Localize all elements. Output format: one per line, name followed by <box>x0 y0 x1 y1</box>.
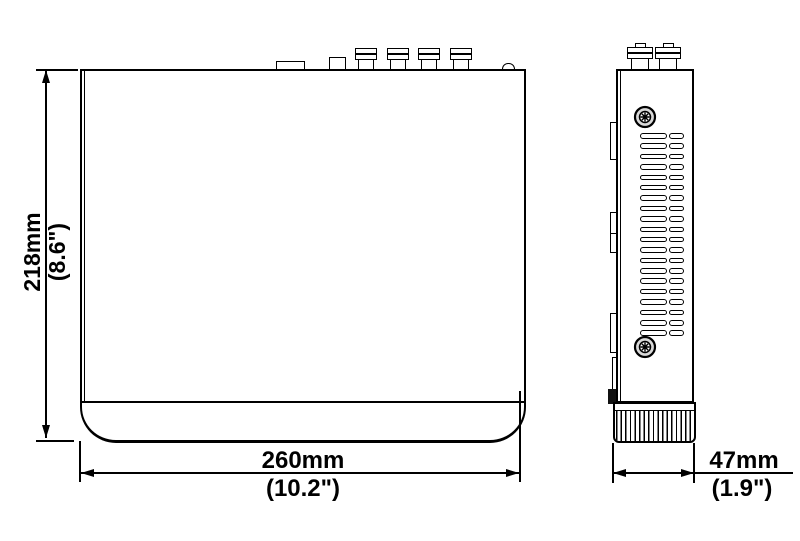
arrowhead-left <box>81 469 94 477</box>
vent-slot <box>640 164 667 170</box>
vent-slot <box>640 195 667 201</box>
bnc-stem <box>631 58 649 69</box>
front-body-inner-edge <box>84 71 85 401</box>
extension-line <box>612 443 614 483</box>
vent-row <box>640 247 684 253</box>
bnc-cap <box>627 47 653 59</box>
vent-slot <box>669 185 684 191</box>
vent-slot <box>669 195 684 201</box>
front-view-base <box>80 403 526 443</box>
vent-slot <box>640 247 667 253</box>
bnc-stem <box>390 59 406 69</box>
height-label-imperial: (8.6") <box>45 204 70 300</box>
vent-row <box>640 154 684 160</box>
vent-slot <box>669 206 684 212</box>
bnc-cap <box>450 48 472 60</box>
vent-row <box>640 216 684 222</box>
vent-row <box>640 330 684 336</box>
depth-label-metric: 47mm <box>694 447 794 475</box>
bnc-cap <box>418 48 440 60</box>
bnc-cap <box>387 48 409 60</box>
vent-slot <box>640 310 667 316</box>
vent-slot <box>640 185 667 191</box>
arrowhead-right <box>506 469 519 477</box>
extension-line <box>36 440 74 442</box>
vent-slot <box>669 216 684 222</box>
bnc-cap <box>655 47 681 59</box>
height-dimension-label: 218mm (8.6") <box>20 204 70 300</box>
vent-row <box>640 227 684 233</box>
vent-slot <box>669 164 684 170</box>
vent-slot <box>640 133 667 139</box>
width-label-imperial: (10.2") <box>230 475 376 503</box>
vent-grid <box>640 133 684 341</box>
vent-slot <box>669 175 684 181</box>
vent-slot <box>669 330 684 336</box>
vent-slot <box>640 143 667 149</box>
vent-slot <box>669 289 684 295</box>
vent-slot <box>669 310 684 316</box>
vent-slot <box>640 206 667 212</box>
vent-row <box>640 143 684 149</box>
bnc-stem <box>453 59 469 69</box>
vent-slot <box>640 237 667 243</box>
extension-line <box>519 391 521 482</box>
vent-row <box>640 195 684 201</box>
vent-slot <box>640 154 667 160</box>
vent-row <box>640 320 684 326</box>
vent-slot <box>669 237 684 243</box>
vent-slot <box>669 320 684 326</box>
vent-slot <box>640 299 667 305</box>
vent-row <box>640 175 684 181</box>
foot-top-band <box>615 404 694 411</box>
front-view-body <box>80 69 526 403</box>
width-label-metric: 260mm <box>230 447 376 475</box>
vent-slot <box>640 175 667 181</box>
vent-slot <box>669 133 684 139</box>
vent-slot <box>640 227 667 233</box>
vent-row <box>640 133 684 139</box>
vent-slot <box>669 278 684 284</box>
vent-row <box>640 206 684 212</box>
vent-row <box>640 289 684 295</box>
depth-label-imperial: (1.9") <box>692 475 792 503</box>
vent-row <box>640 310 684 316</box>
vent-row <box>640 268 684 274</box>
vent-row <box>640 164 684 170</box>
vent-slot <box>640 278 667 284</box>
vent-row <box>640 185 684 191</box>
bnc-stem <box>358 59 374 69</box>
dimension-drawing-page: { "drawing": { "title": "device-dimensio… <box>0 0 800 541</box>
arrowhead-left <box>613 469 626 477</box>
arrowhead-up <box>42 70 50 83</box>
bnc-stem <box>421 59 437 69</box>
vent-slot <box>669 154 684 160</box>
vent-slot <box>669 258 684 264</box>
foot-ribs <box>616 411 693 441</box>
height-label-metric: 218mm <box>20 204 45 300</box>
arrowhead-down <box>42 425 50 438</box>
vent-row <box>640 299 684 305</box>
vent-slot <box>669 227 684 233</box>
vent-slot <box>669 299 684 305</box>
vent-slot <box>669 247 684 253</box>
side-view-foot <box>613 402 696 443</box>
bnc-cap <box>355 48 377 60</box>
vent-slot <box>669 143 684 149</box>
vent-slot <box>640 216 667 222</box>
vent-slot <box>669 268 684 274</box>
vent-row <box>640 278 684 284</box>
vent-slot <box>640 268 667 274</box>
vent-row <box>640 258 684 264</box>
vent-row <box>640 237 684 243</box>
vent-slot <box>640 320 667 326</box>
vent-slot <box>640 258 667 264</box>
bnc-stem <box>659 58 677 69</box>
vent-slot <box>640 289 667 295</box>
vent-slot <box>640 330 667 336</box>
side-body-inner-edge <box>620 71 621 401</box>
screw-icon <box>633 105 657 129</box>
